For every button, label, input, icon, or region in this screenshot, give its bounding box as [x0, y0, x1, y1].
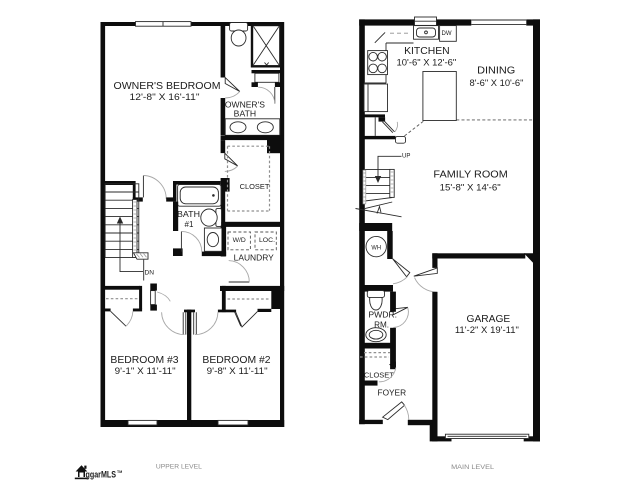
svg-text:#1: #1	[185, 219, 194, 229]
svg-text:10'-6" X 12'-6": 10'-6" X 12'-6"	[397, 58, 457, 68]
svg-text:FAMILY ROOM: FAMILY ROOM	[433, 169, 507, 181]
svg-text:ggarMLS: ggarMLS	[86, 470, 117, 480]
svg-text:DW: DW	[442, 30, 453, 37]
svg-text:OWNER'S BEDROOM: OWNER'S BEDROOM	[114, 80, 221, 92]
svg-text:TM: TM	[117, 470, 122, 474]
svg-text:BATH: BATH	[177, 209, 200, 219]
svg-text:LAUNDRY: LAUNDRY	[234, 252, 275, 262]
svg-text:WH: WH	[371, 244, 381, 251]
svg-text:DN: DN	[145, 269, 155, 276]
svg-text:GARAGE: GARAGE	[467, 313, 511, 325]
svg-text:9'-8" X 11'-11": 9'-8" X 11'-11"	[207, 366, 268, 376]
svg-text:FOYER: FOYER	[378, 388, 407, 398]
svg-text:BATH: BATH	[234, 109, 256, 119]
svg-text:W/D: W/D	[233, 237, 247, 244]
svg-text:12'-8" X 16'-11": 12'-8" X 16'-11"	[130, 92, 200, 102]
svg-text:11'-2" X 19'-11": 11'-2" X 19'-11"	[455, 325, 519, 335]
svg-text:MAIN LEVEL: MAIN LEVEL	[451, 464, 494, 471]
svg-text:UPPER LEVEL: UPPER LEVEL	[156, 463, 202, 470]
svg-text:9'-1" X 11'-11": 9'-1" X 11'-11"	[115, 366, 176, 376]
svg-text:8'-6" X 10'-6": 8'-6" X 10'-6"	[470, 78, 524, 88]
svg-text:LOC.: LOC.	[259, 237, 275, 244]
svg-text:DINING: DINING	[477, 65, 515, 77]
svg-text:KITCHEN: KITCHEN	[404, 45, 450, 57]
svg-text:BEDROOM #2: BEDROOM #2	[202, 354, 270, 366]
svg-text:BEDROOM #3: BEDROOM #3	[110, 354, 178, 366]
svg-text:15'-8" X 14'-6": 15'-8" X 14'-6"	[440, 182, 501, 192]
svg-text:CLOSET: CLOSET	[240, 182, 270, 191]
svg-text:UP: UP	[402, 152, 410, 159]
